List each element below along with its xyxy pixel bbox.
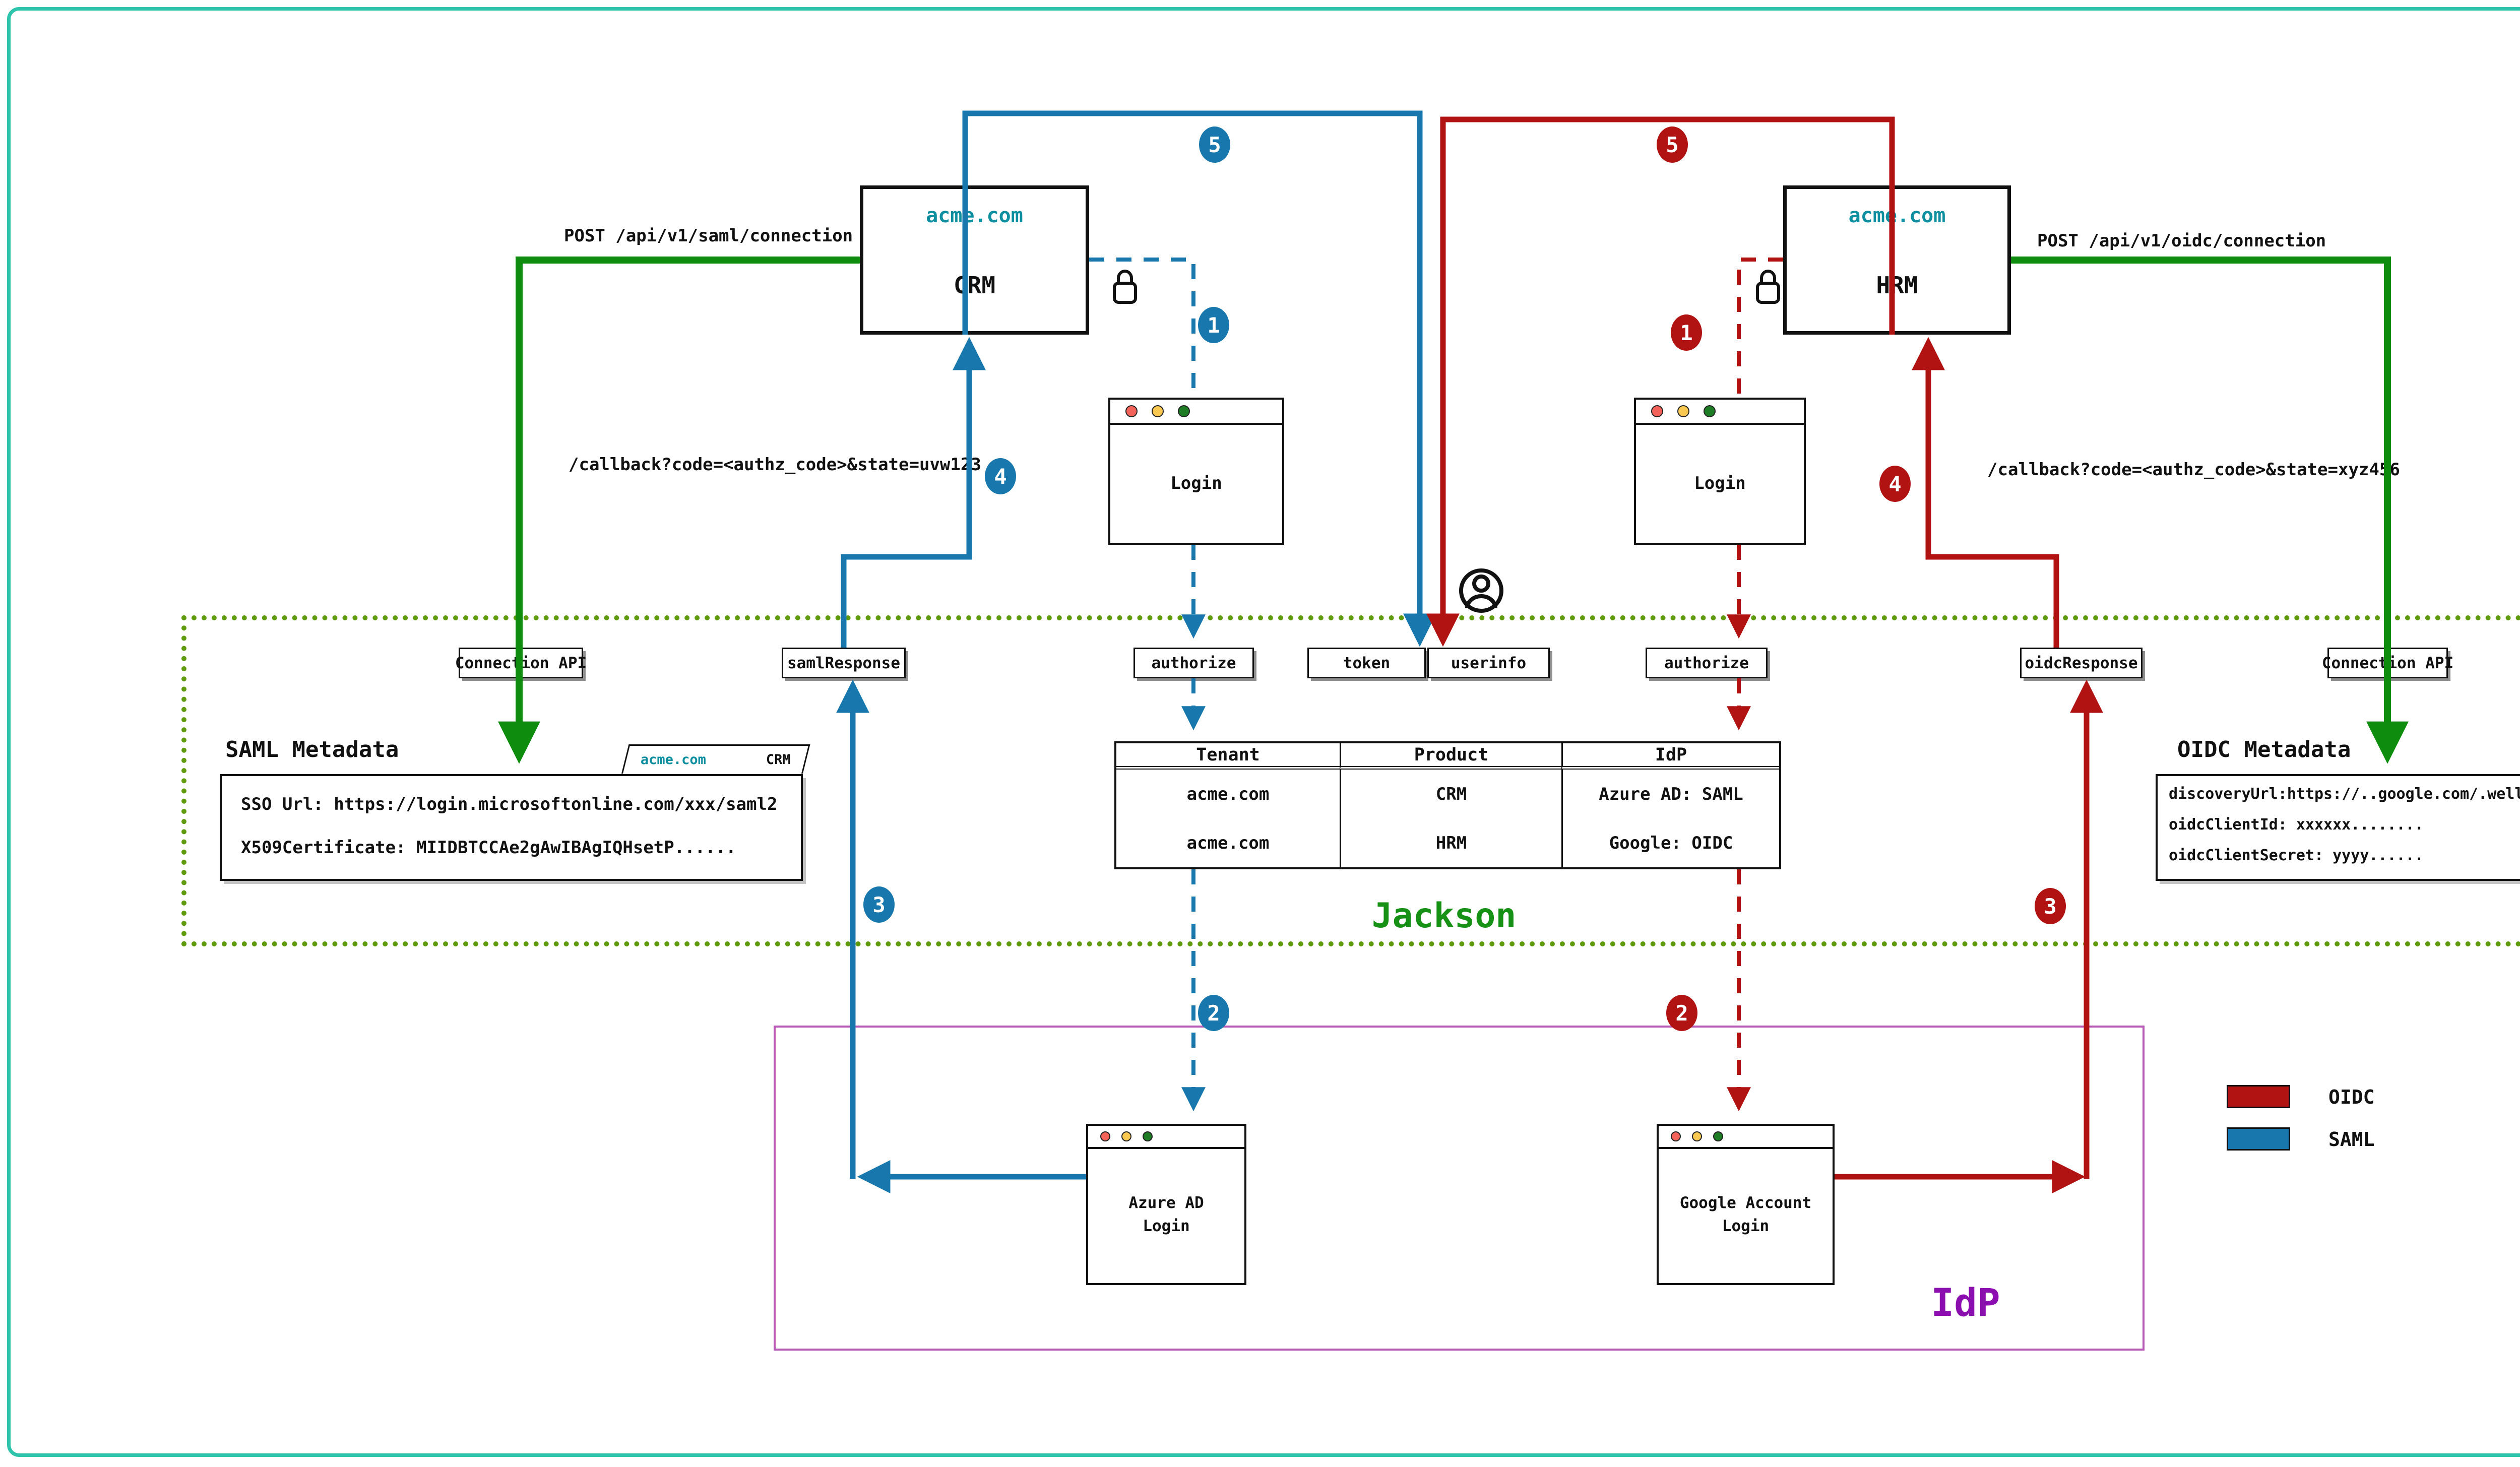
step-badge-saml-2: 2 <box>1198 995 1229 1031</box>
step-badge-saml-3: 3 <box>863 886 895 923</box>
flow-connectors <box>0 0 2520 1467</box>
sso-flow-diagram: Jackson IdP acme.com CRM acme.com HRM PO… <box>0 0 2520 1467</box>
step-badge-oidc-4: 4 <box>1879 466 1911 502</box>
step-badge-oidc-5: 5 <box>1657 126 1688 163</box>
lock-icon-crm <box>1114 271 1136 302</box>
oidc-step5-line <box>1443 119 1892 639</box>
step-badge-oidc-1: 1 <box>1671 314 1702 351</box>
step-badge-oidc-2: 2 <box>1666 995 1697 1031</box>
oidc-connection-api-line <box>2011 260 2387 754</box>
saml-connection-api-line <box>519 260 860 754</box>
user-icon <box>1461 570 1501 611</box>
step-badge-saml-4: 4 <box>985 458 1016 494</box>
lock-icon-hrm <box>1757 271 1779 302</box>
oidc-step4-line <box>1928 345 2056 648</box>
step-badge-saml-1: 1 <box>1198 307 1229 343</box>
step-badge-oidc-3: 3 <box>2035 888 2066 924</box>
saml-authorize-dashed-1 <box>1089 260 1193 398</box>
saml-step4-line <box>844 345 969 648</box>
step-badge-saml-5: 5 <box>1199 126 1230 163</box>
